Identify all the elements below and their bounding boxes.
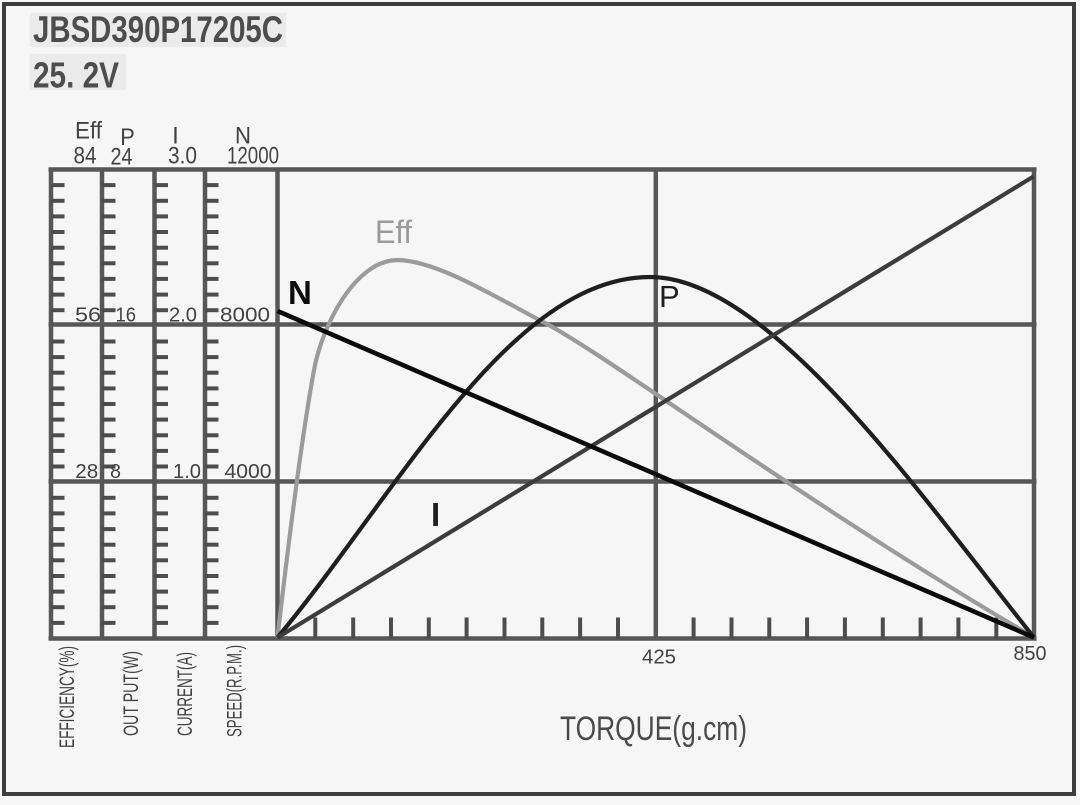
svg-text:12000: 12000 — [227, 143, 279, 170]
svg-text:Eff: Eff — [375, 214, 412, 250]
svg-text:P: P — [659, 279, 680, 314]
svg-text:4000: 4000 — [225, 460, 272, 483]
svg-text:EFFICIENCY(%): EFFICIENCY(%) — [56, 646, 79, 748]
svg-text:TORQUE(g.cm): TORQUE(g.cm) — [560, 710, 747, 748]
svg-text:JBSD390P17205C: JBSD390P17205C — [33, 9, 283, 50]
svg-text:24: 24 — [111, 144, 133, 171]
svg-text:3.0: 3.0 — [168, 143, 197, 170]
svg-text:2.0: 2.0 — [169, 304, 197, 327]
svg-text:56: 56 — [75, 304, 101, 327]
svg-text:Eff: Eff — [75, 118, 102, 145]
svg-text:OUT PUT(W): OUT PUT(W) — [120, 651, 143, 736]
svg-text:N: N — [288, 274, 312, 311]
svg-text:84: 84 — [74, 143, 97, 170]
svg-text:8: 8 — [110, 460, 121, 483]
svg-text:SPEED(R.P.M.): SPEED(R.P.M.) — [224, 645, 247, 737]
svg-text:28: 28 — [75, 460, 98, 483]
svg-text:850: 850 — [1014, 642, 1047, 665]
svg-text:25. 2V: 25. 2V — [33, 55, 119, 96]
svg-text:1.0: 1.0 — [173, 460, 201, 483]
svg-text:8000: 8000 — [220, 304, 270, 327]
svg-text:425: 425 — [642, 646, 676, 669]
svg-text:16: 16 — [116, 304, 137, 327]
svg-text:I: I — [431, 496, 440, 533]
svg-text:CURRENT(A): CURRENT(A) — [174, 652, 197, 736]
